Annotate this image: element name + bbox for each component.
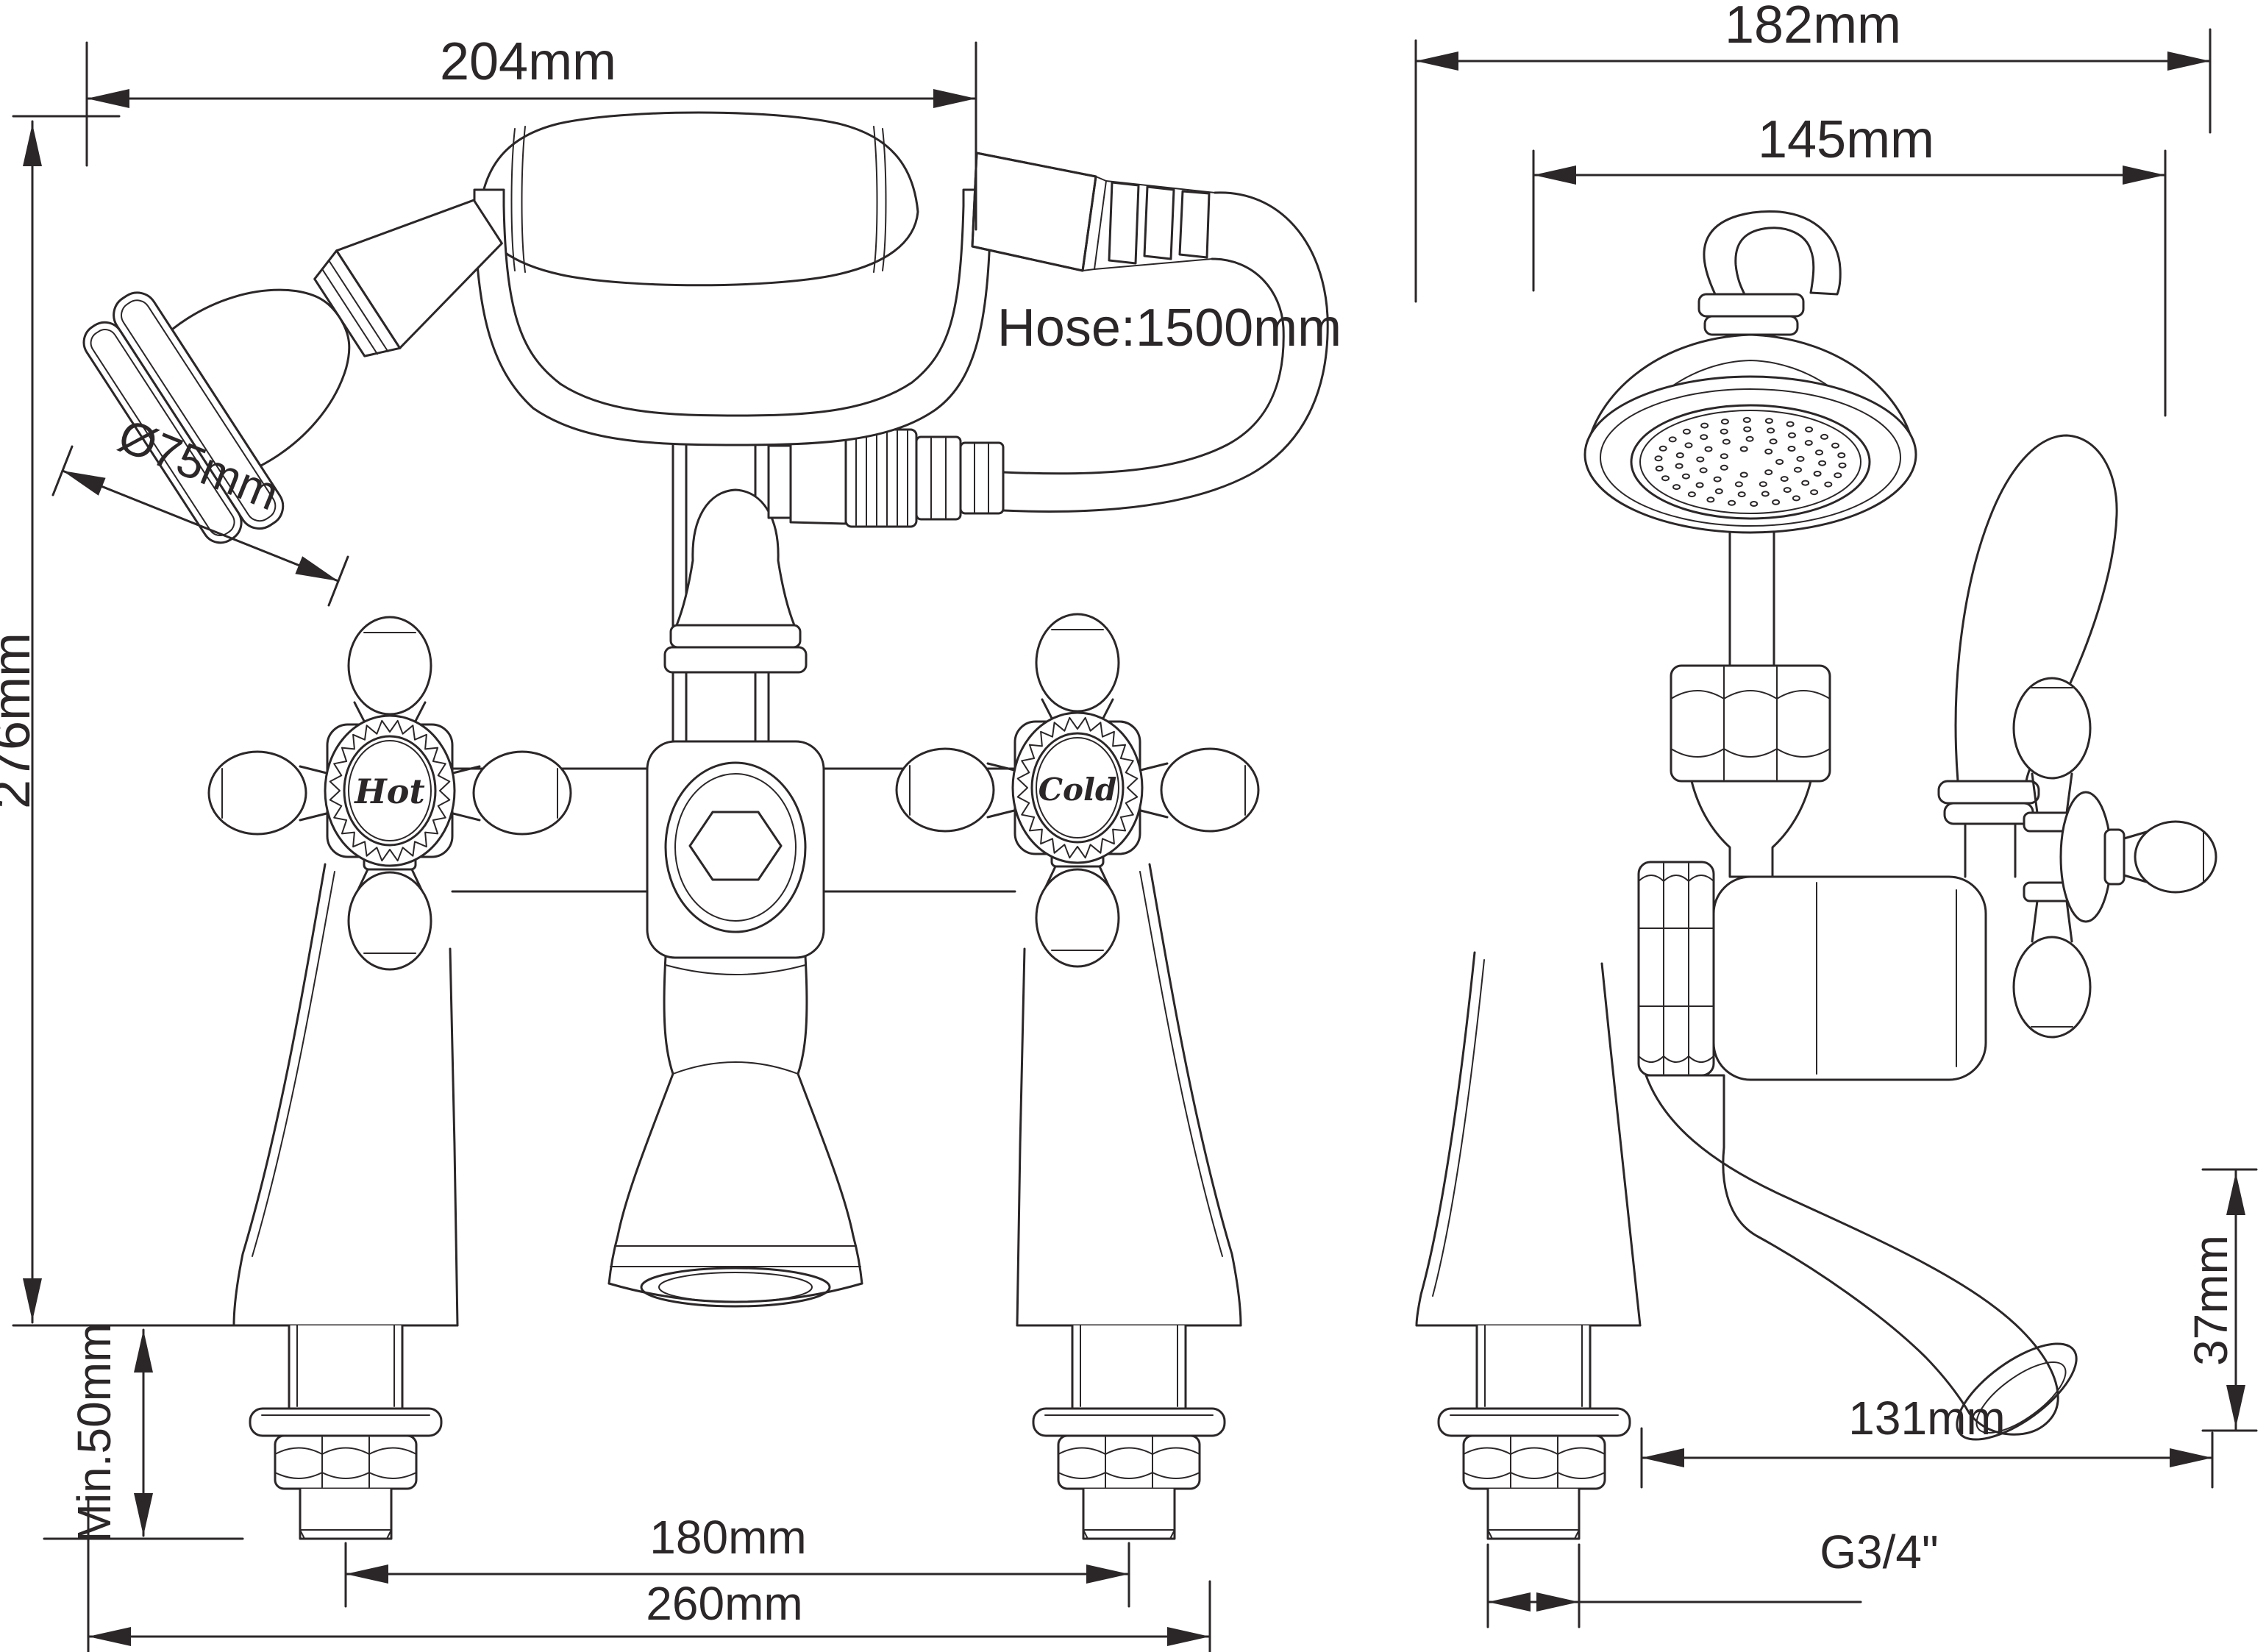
- dimension-arrowhead: [63, 471, 106, 496]
- front-left-leg: [234, 864, 457, 1539]
- side-view: [1417, 211, 2216, 1539]
- dimension-arrowhead: [1642, 1448, 1684, 1467]
- hose-length-label: Hose:1500mm: [997, 299, 1342, 357]
- dim-label-37: 37mm: [2184, 1235, 2237, 1366]
- dim-label-182: 182mm: [1725, 0, 1901, 54]
- dim-label-204: 204mm: [440, 32, 616, 91]
- side-tail: [1439, 1325, 1630, 1539]
- side-shower-head: [1585, 335, 1916, 533]
- dim-label-131: 131mm: [1848, 1392, 2005, 1445]
- dimension-arrowhead: [23, 1278, 42, 1321]
- dim-label-min50: Min.50mm: [68, 1323, 121, 1543]
- dim-label-180: 180mm: [649, 1511, 806, 1564]
- dim-label-260: 260mm: [646, 1577, 802, 1630]
- dim-label-145: 145mm: [1758, 110, 1934, 169]
- dim-label-276: 276mm: [0, 633, 41, 809]
- cold-handle: Cold: [897, 614, 1258, 966]
- dimension-arrowhead: [1086, 1564, 1129, 1584]
- front-right-tail: [1033, 1325, 1225, 1539]
- front-right-leg: [1017, 864, 1241, 1539]
- hot-medallion-label: Hot: [353, 772, 424, 811]
- dimension-arrowhead: [87, 89, 129, 108]
- thread-size-label: G3/4": [1820, 1525, 1938, 1578]
- dimension-arrowhead: [933, 89, 976, 108]
- valve-centre-block: [647, 741, 824, 958]
- technical-drawing: Hot Cold: [0, 0, 2266, 1652]
- dimension-arrowhead: [346, 1564, 388, 1584]
- dimension-arrowhead: [23, 124, 42, 166]
- dimension-arrowhead: [295, 556, 338, 581]
- front-left-tail: [250, 1325, 441, 1539]
- dimension-arrowhead: [1536, 1592, 1579, 1612]
- hose-connector-knurled: [972, 153, 1215, 271]
- side-leg: [1417, 953, 1640, 1539]
- handset-grip: [480, 113, 918, 285]
- dimension-arrowhead: [2170, 1448, 2212, 1467]
- dimension-arrowhead: [2226, 1385, 2245, 1428]
- side-cross-handle: [2014, 678, 2216, 1037]
- dimension-arrowhead: [134, 1493, 153, 1536]
- technical-drawing-page: Hot Cold: [0, 0, 2266, 1652]
- spout-bell: [609, 956, 862, 1306]
- side-valve-body: [1639, 824, 2015, 1080]
- side-head-stem: [1671, 530, 1830, 877]
- cold-medallion-label: Cold: [1038, 772, 1117, 808]
- hanger-hook: [1699, 211, 1840, 335]
- dimension-arrowhead: [1488, 1592, 1531, 1612]
- dimension-arrowhead: [134, 1330, 153, 1372]
- dimension-arrowhead: [2226, 1172, 2245, 1215]
- dimension-arrowhead: [1167, 1627, 1210, 1646]
- dimension-arrowhead: [1533, 165, 1576, 185]
- dimension-arrowhead: [88, 1627, 131, 1646]
- dimension-arrowhead: [1416, 51, 1458, 71]
- hot-handle: Hot: [209, 617, 571, 969]
- dimension-arrowhead: [2167, 51, 2210, 71]
- dimension-arrowhead: [2123, 165, 2165, 185]
